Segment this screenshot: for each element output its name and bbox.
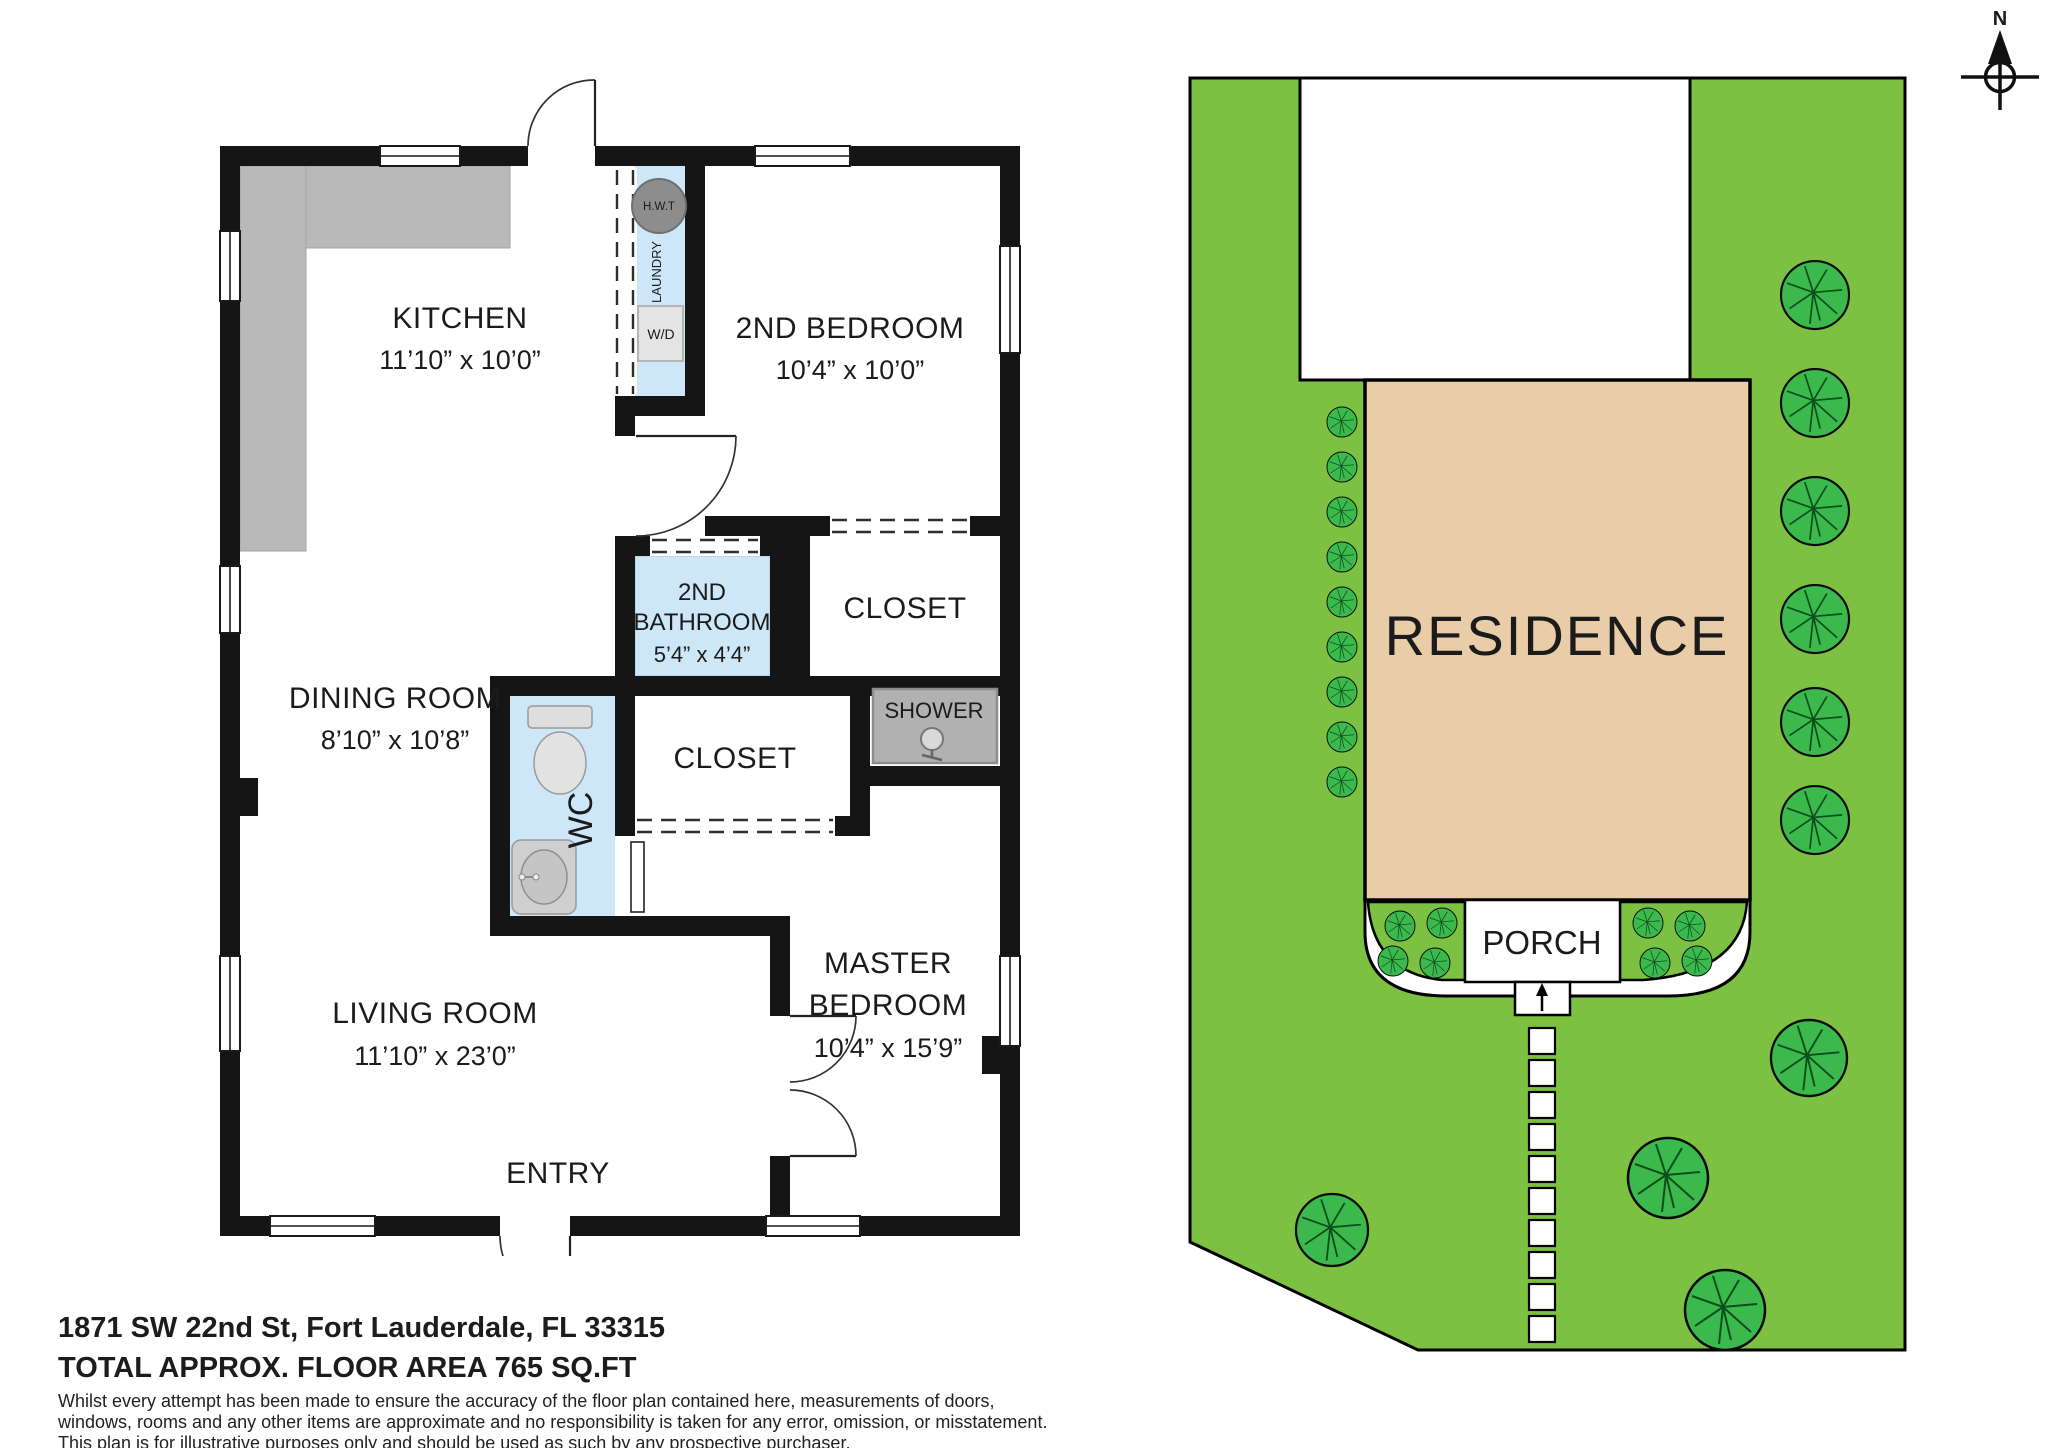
disclaimer-line: windows, rooms and any other items are a… — [58, 1412, 1047, 1433]
back-door — [528, 80, 595, 166]
second-bathroom-dims: 5’4” x 4’4” — [654, 642, 751, 667]
bush-icon — [1327, 407, 1357, 437]
stepping-stone — [1529, 1156, 1555, 1182]
stepping-stone — [1529, 1028, 1555, 1054]
living-room-label: LIVING ROOM — [332, 997, 538, 1030]
stepping-stone — [1529, 1060, 1555, 1086]
tree-icon — [1781, 261, 1849, 329]
tree-icon — [1781, 786, 1849, 854]
window — [220, 956, 240, 1051]
second-bedroom-label: 2ND BEDROOM — [736, 312, 965, 345]
bush-icon — [1385, 911, 1415, 941]
bush-icon — [1682, 946, 1712, 976]
bush-icon — [1420, 948, 1450, 978]
laundry-label: LAUNDRY — [649, 241, 664, 303]
kitchen-dims: 11’10” x 10’0” — [379, 345, 541, 375]
bush-icon — [1633, 908, 1663, 938]
bush-icon — [1327, 632, 1357, 662]
footer: 1871 SW 22nd St, Fort Lauderdale, FL 333… — [58, 1312, 1047, 1448]
master-bedroom-label-1: MASTER — [824, 947, 952, 980]
second-bathroom-label-2: BATHROOM — [634, 609, 771, 636]
porch-label: PORCH — [1482, 924, 1601, 961]
bush-row — [1327, 407, 1357, 797]
bush-icon — [1327, 722, 1357, 752]
tree-icon — [1296, 1194, 1368, 1266]
floor-plan: KITCHEN 11’10” x 10’0” 2ND BEDROOM 10’4”… — [210, 76, 1030, 1256]
window — [270, 1216, 375, 1236]
north-label: N — [1993, 8, 2007, 30]
stepping-stone — [1529, 1092, 1555, 1118]
floorplan-page: KITCHEN 11’10” x 10’0” 2ND BEDROOM 10’4”… — [0, 0, 2048, 1448]
entry-door — [500, 1216, 570, 1256]
kitchen-label: KITCHEN — [392, 302, 527, 335]
master-bedroom-label-2: BEDROOM — [809, 989, 968, 1022]
sink-icon — [512, 840, 576, 914]
bush-icon — [1327, 452, 1357, 482]
lot-cutout — [1300, 78, 1690, 380]
address-line: 1871 SW 22nd St, Fort Lauderdale, FL 333… — [58, 1312, 1047, 1345]
site-plan: RESIDENCE PORCH — [1160, 70, 1920, 1360]
dining-room-dims: 8’10” x 10’8” — [321, 725, 470, 755]
compass: N — [1955, 6, 2045, 118]
bush-icon — [1675, 911, 1705, 941]
bush-icon — [1327, 677, 1357, 707]
stepping-stone — [1529, 1220, 1555, 1246]
washer-dryer-label: W/D — [647, 326, 674, 342]
dining-room-label: DINING ROOM — [289, 682, 501, 715]
compass-north-icon — [1961, 30, 2039, 110]
bush-icon — [1327, 497, 1357, 527]
window — [1000, 246, 1020, 353]
master-bedroom-dims: 10’4” x 15’9” — [814, 1033, 963, 1063]
bush-icon — [1327, 587, 1357, 617]
window — [1000, 956, 1020, 1046]
tree-icon — [1781, 688, 1849, 756]
living-room-dims: 11’10” x 23’0” — [354, 1041, 516, 1071]
master-closet-label: CLOSET — [673, 742, 796, 775]
tree-icon — [1771, 1020, 1847, 1096]
entry-label: ENTRY — [506, 1157, 610, 1190]
second-bathroom-label-1: 2ND — [678, 579, 726, 606]
stepping-stone — [1529, 1284, 1555, 1310]
bush-icon — [1378, 946, 1408, 976]
disclaimer-line: This plan is for illustrative purposes o… — [58, 1433, 1047, 1448]
tree-icon — [1781, 477, 1849, 545]
water-heater-label: H.W.T — [643, 201, 675, 213]
bathroom-sliding-door — [650, 536, 760, 556]
tree-icon — [1781, 585, 1849, 653]
stepping-stone — [1529, 1188, 1555, 1214]
residence-label: RESIDENCE — [1385, 604, 1730, 667]
tree-icon — [1685, 1270, 1765, 1350]
wc-door — [615, 836, 644, 916]
stepping-stone — [1529, 1316, 1555, 1342]
window — [755, 146, 850, 166]
bush-icon — [1327, 542, 1357, 572]
window — [220, 566, 240, 633]
master-closet-bifold — [635, 816, 835, 836]
tree-icon — [1628, 1138, 1708, 1218]
bedroom2-closet-bifold — [830, 516, 970, 536]
window — [766, 1216, 860, 1236]
tree-icon — [1781, 369, 1849, 437]
bush-icon — [1427, 908, 1457, 938]
disclaimer-line: Whilst every attempt has been made to en… — [58, 1391, 1047, 1412]
floor-area-line: TOTAL APPROX. FLOOR AREA 765 SQ.FT — [58, 1352, 1047, 1385]
bush-icon — [1640, 948, 1670, 978]
stepping-stone — [1529, 1124, 1555, 1150]
stepping-stone — [1529, 1252, 1555, 1278]
bush-icon — [1327, 767, 1357, 797]
wc-label: WC — [562, 792, 600, 849]
window — [380, 146, 460, 166]
second-bedroom-dims: 10’4” x 10’0” — [776, 355, 925, 385]
bedroom2-closet-label: CLOSET — [843, 592, 966, 625]
window — [220, 231, 240, 301]
shower-label: SHOWER — [885, 698, 984, 723]
